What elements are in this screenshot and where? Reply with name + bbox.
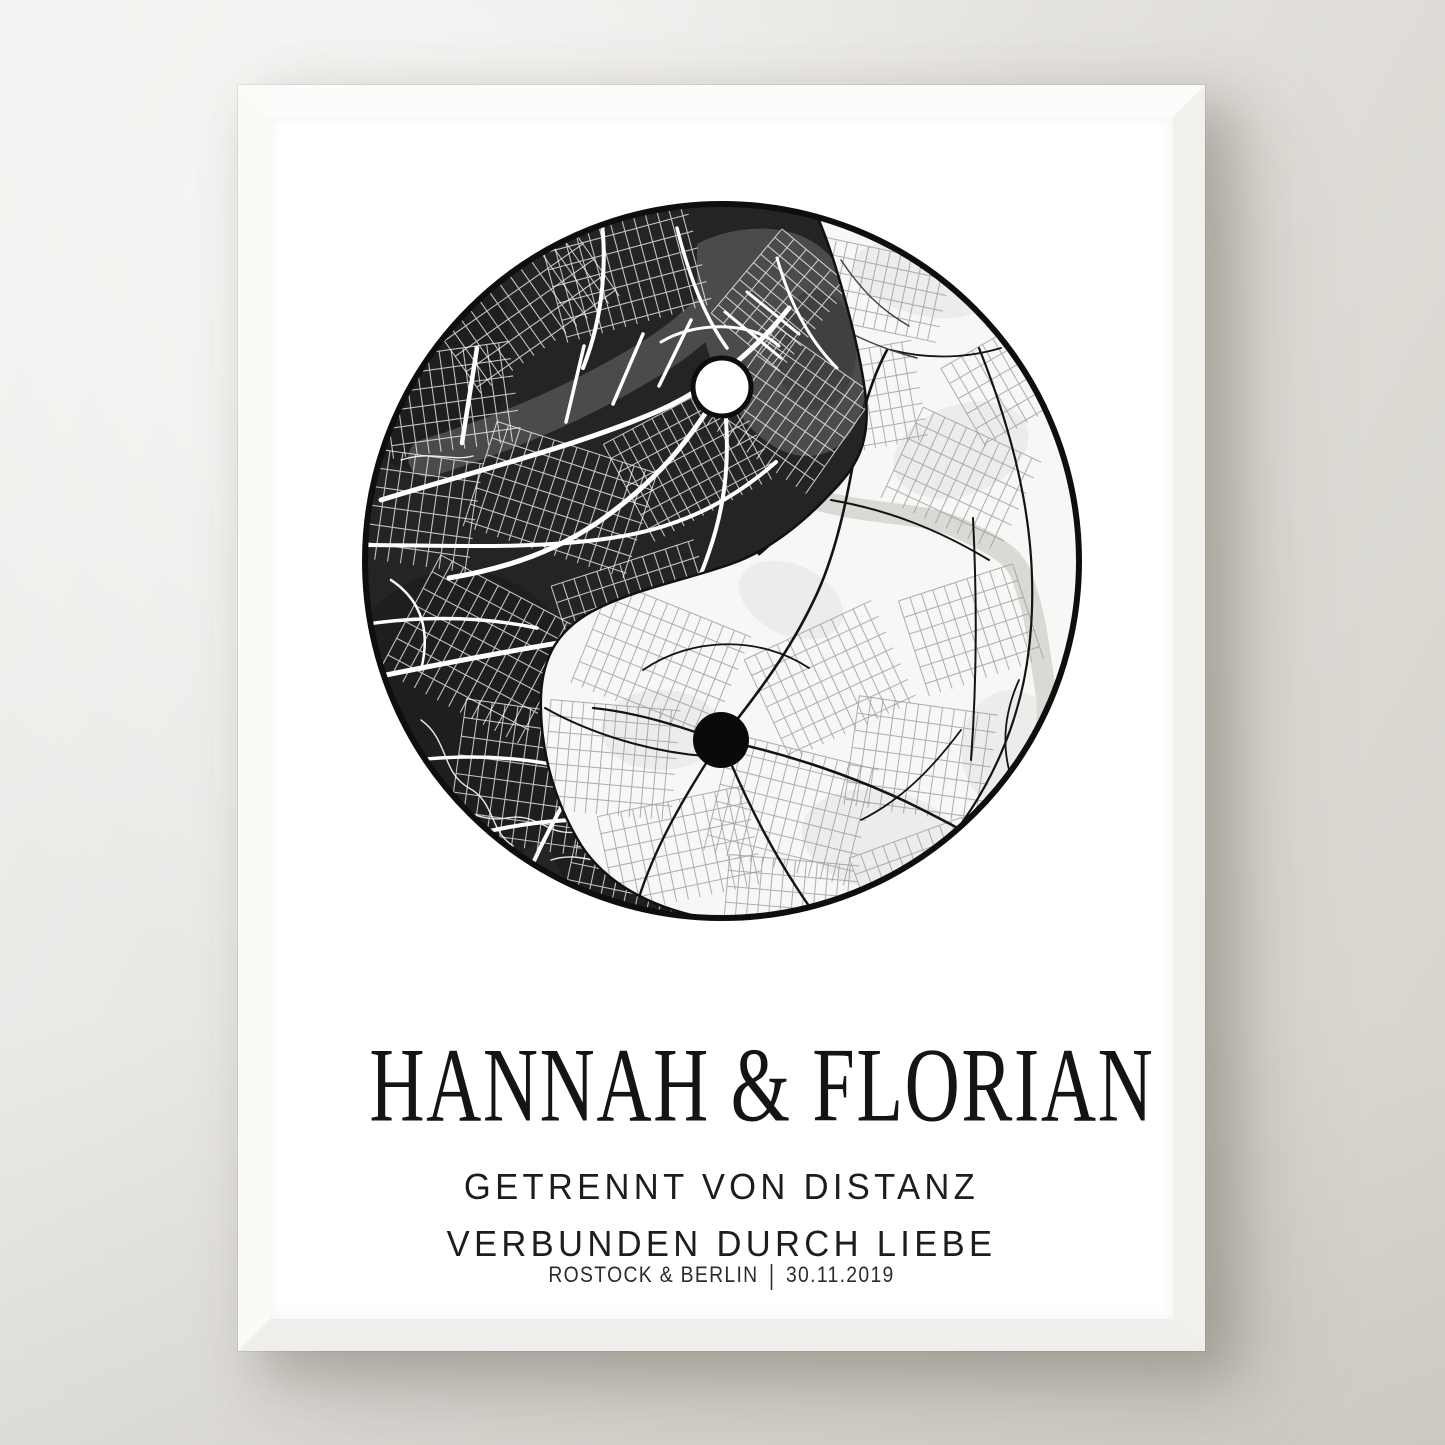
poster-frame: HANNAH & FLORIAN GETRENNT VON DISTANZ VE… [238, 85, 1205, 1351]
yin-yang-map-svg [361, 200, 1083, 922]
footer-places: ROSTOCK & BERLIN [548, 1262, 758, 1287]
couple-names-title: HANNAH & FLORIAN [369, 1033, 1073, 1139]
footer-caption: ROSTOCK & BERLIN|30.11.2019 [324, 1262, 1119, 1288]
marker-white-dot [693, 358, 751, 416]
poster-subtitle: GETRENNT VON DISTANZ VERBUNDEN DURCH LIE… [288, 1159, 1155, 1273]
footer-date: 30.11.2019 [786, 1262, 895, 1287]
marker-black-dot [693, 712, 749, 768]
poster: HANNAH & FLORIAN GETRENNT VON DISTANZ VE… [270, 117, 1173, 1319]
yin-yang-map [361, 200, 1083, 922]
subtitle-line-1: GETRENNT VON DISTANZ [288, 1159, 1155, 1216]
footer-separator: | [769, 1259, 775, 1292]
